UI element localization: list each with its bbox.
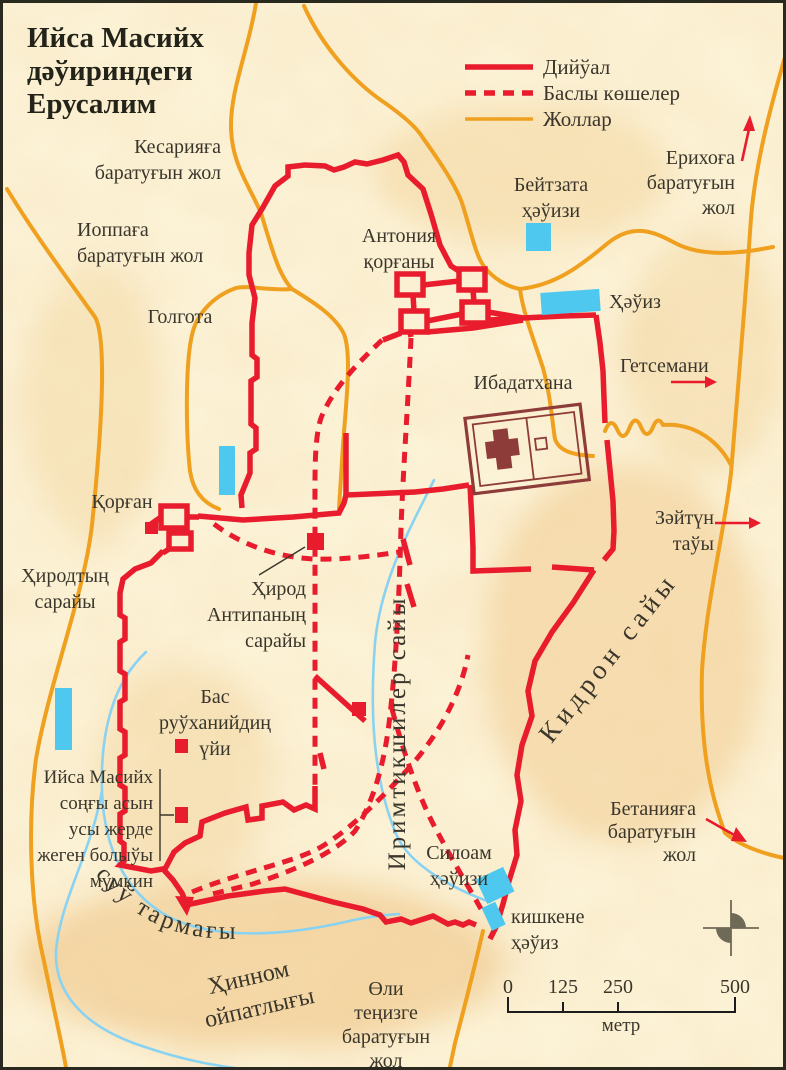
title-line-3: Ерусалим	[27, 88, 156, 120]
scale-unit: метр	[602, 1015, 641, 1036]
legend-item-wall: Дийўал	[543, 55, 610, 79]
west-upper-pool	[219, 446, 235, 495]
qorgan-label: Қорған	[91, 491, 152, 513]
street-square	[352, 702, 366, 716]
herod-antipas-palace-square	[307, 533, 324, 550]
legend-item-roads: Жоллар	[543, 107, 612, 131]
west-lower-pool	[55, 688, 72, 750]
legend-item-streets: Баслы көшелер	[543, 81, 680, 105]
wall-fragment-4	[320, 753, 324, 769]
east-gate-wall	[552, 567, 594, 570]
jerusalem-map: 0 125 250 500 метр Дийўал Баслы көшелер …	[0, 0, 786, 1070]
scale-tick-0: 0	[503, 976, 513, 998]
scale-tick-125: 125	[548, 976, 578, 998]
gethsemane-label: Гетсемани	[620, 355, 709, 377]
golgotha-label: Голгота	[148, 306, 213, 328]
title-line-1: Ийса Масийх	[27, 22, 204, 54]
temple-label: Ибадатхана	[474, 372, 573, 394]
cheesemakers-valley-label: Иримтикшилер сайы	[384, 596, 411, 871]
north-pool	[540, 289, 600, 315]
bethzatha-pool	[526, 223, 551, 251]
title-line-2: дәўириндеги	[27, 55, 193, 87]
scale-tick-500: 500	[720, 976, 750, 998]
scale-tick-250: 250	[603, 976, 633, 998]
last-supper-square	[175, 807, 188, 823]
high-priest-house-square	[175, 739, 188, 753]
map-canvas: 0 125 250 500 метр Дийўал Баслы көшелер …	[3, 3, 786, 1070]
pool-label: Ҳәўиз	[609, 291, 661, 313]
